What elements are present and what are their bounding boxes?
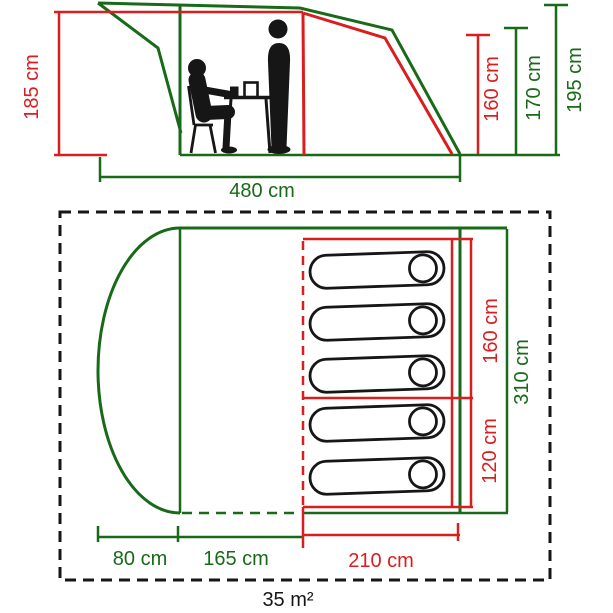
- tent-dimensions-figure: 185 cm 160 cm 170 cm 195 cm 480 cm: [0, 0, 613, 613]
- total-length-label: 480 cm: [229, 180, 295, 202]
- side-view-diagram: 185 cm 160 cm 170 cm 195 cm 480 cm: [21, 3, 586, 202]
- inner-tent-roof-outline: [303, 13, 452, 154]
- dimension-sleeping-width-main: 160 cm 120 cm: [471, 239, 502, 507]
- dimension-porch-height: 185 cm: [21, 12, 303, 155]
- floor-area-dashed-border: [60, 212, 550, 580]
- feet: [268, 145, 291, 154]
- standing-person-icon: [268, 20, 291, 155]
- sleeping-bag-icon: [309, 404, 444, 442]
- floor-plan-diagram: 160 cm 120 cm 310 cm 80 cm 165 cm 210 cm…: [60, 212, 550, 611]
- sleeping-bag-icon: [309, 303, 444, 341]
- porch-arc: [98, 228, 180, 513]
- porch-depth-label: 80 cm: [113, 548, 167, 570]
- floor-area-label: 35 m²: [262, 589, 313, 611]
- foot: [221, 147, 237, 154]
- tent-diagram-canvas: 185 cm 160 cm 170 cm 195 cm 480 cm: [0, 0, 613, 613]
- total-height-label: 195 cm: [564, 47, 586, 113]
- dimension-porch-living-depth: 80 cm 165 cm: [98, 526, 303, 570]
- sleeping-bag-icon: [309, 355, 444, 393]
- inner-tent-front-wall: [303, 13, 304, 155]
- porch-height-label: 185 cm: [21, 54, 43, 120]
- inner-height-label: 160 cm: [481, 56, 503, 122]
- dimension-total-height: 195 cm: [544, 5, 586, 154]
- sleeping-width-small-label: 120 cm: [479, 418, 501, 484]
- dimension-total-width: 310 cm: [507, 229, 533, 512]
- sleeping-bag-icon: [309, 251, 444, 289]
- tent-door-edge-outline: [98, 3, 181, 133]
- dimension-sleeping-depth: 210 cm: [303, 507, 460, 572]
- bedroom-height-label: 170 cm: [523, 55, 545, 121]
- head: [269, 20, 288, 39]
- dimension-bedroom-height: 170 cm: [504, 28, 545, 154]
- sleeping-depth-label: 210 cm: [348, 550, 414, 572]
- dimension-total-length: 480 cm: [100, 156, 460, 202]
- dimension-inner-height: 160 cm: [466, 35, 503, 154]
- cup-icon: [230, 87, 239, 98]
- table-legs: [227, 99, 270, 153]
- mug-icon: [245, 83, 258, 98]
- sleeping-bags: [309, 251, 444, 495]
- sleeping-width-main-label: 160 cm: [480, 298, 502, 364]
- total-width-label: 310 cm: [511, 339, 533, 405]
- sleeping-bag-icon: [309, 457, 444, 495]
- body: [268, 43, 290, 148]
- living-depth-label: 165 cm: [203, 548, 269, 570]
